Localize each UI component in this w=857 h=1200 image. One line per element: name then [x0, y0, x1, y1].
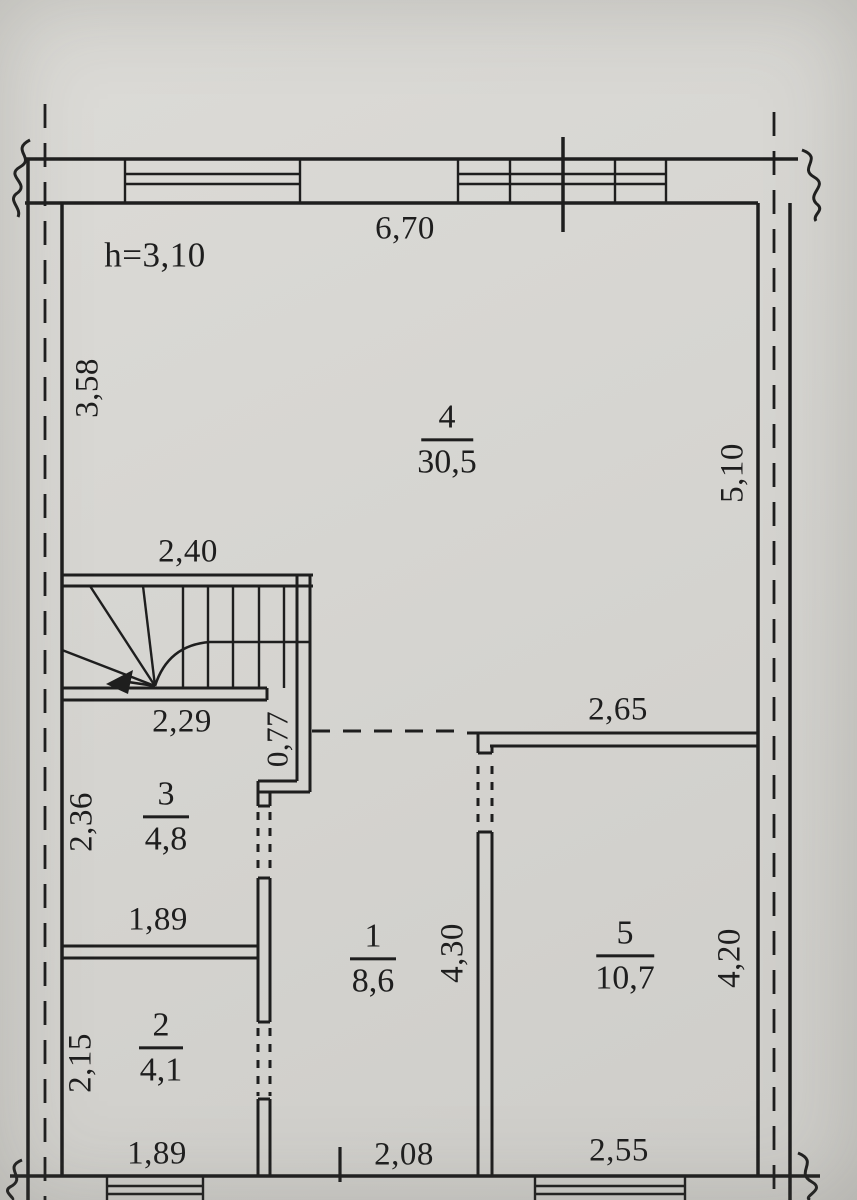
break-marks [7, 140, 819, 1200]
room-label-5: 5 10,7 [595, 916, 655, 995]
dim-bottom-left: 1,89 [127, 1138, 187, 1171]
top-window-right [458, 137, 666, 232]
dim-room2-width-top: 1,89 [128, 904, 188, 937]
stair-direction-arrow [106, 670, 133, 694]
dim-bottom-middle: 2,08 [374, 1139, 434, 1172]
room-label-2: 2 4,1 [139, 1008, 183, 1087]
room-label-3: 3 4,8 [143, 777, 189, 856]
fraction-line [350, 957, 396, 960]
dim-room3-height: 2,36 [66, 792, 99, 852]
room-label-4: 4 30,5 [417, 400, 477, 479]
room-label-1: 1 8,6 [350, 919, 396, 998]
dim-top-wall: 6,70 [375, 213, 435, 246]
room-area: 4,1 [139, 1053, 183, 1088]
room-area: 10,7 [595, 961, 655, 996]
room-number: 3 [143, 777, 189, 812]
room-number: 1 [350, 919, 396, 954]
room-number: 5 [595, 916, 655, 951]
fraction-line [139, 1046, 183, 1049]
top-window-left [125, 159, 300, 203]
dim-stairs-width: 2,40 [158, 536, 218, 569]
dim-bottom-right: 2,55 [589, 1135, 649, 1168]
top-wall [25, 159, 798, 203]
floorplan-linework [0, 0, 857, 1200]
dim-room1-height: 4,30 [437, 923, 470, 983]
fraction-line [596, 954, 654, 957]
wall-room3-hall [258, 781, 310, 1177]
dim-room2-height: 2,15 [65, 1033, 98, 1093]
dim-room3-width: 2,29 [152, 706, 212, 739]
wall-room3-room2 [62, 946, 258, 958]
room-area: 4,8 [143, 822, 189, 857]
dim-wall-offset: 0,77 [262, 711, 293, 767]
dim-room5-height: 4,20 [714, 928, 747, 988]
bottom-window-left [107, 1176, 203, 1200]
room-area: 30,5 [417, 445, 477, 480]
stair-treads [62, 586, 284, 688]
fraction-line [421, 438, 473, 441]
fraction-line [143, 815, 189, 818]
room-number: 4 [417, 400, 477, 435]
floorplan-photo: h=3,10 6,70 3,58 5,10 2,40 2,29 0,77 2,6… [0, 0, 857, 1200]
bottom-window-right [535, 1176, 685, 1200]
dim-right-upper: 5,10 [717, 443, 750, 503]
room-number: 2 [139, 1008, 183, 1043]
ceiling-height-label: h=3,10 [104, 238, 206, 273]
dim-left-upper: 3,58 [72, 358, 105, 418]
room-area: 8,6 [350, 964, 396, 999]
dim-room5-width-top: 2,65 [588, 694, 648, 727]
